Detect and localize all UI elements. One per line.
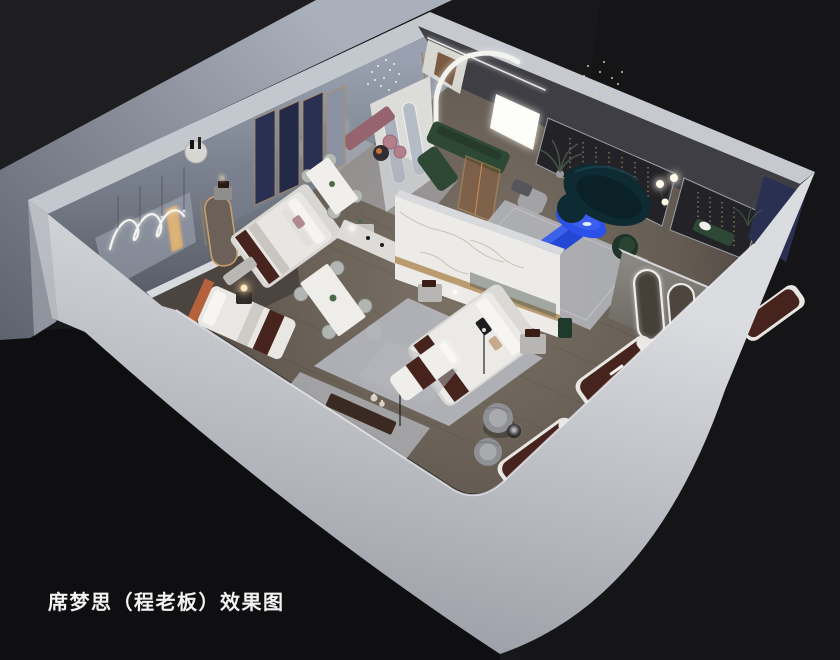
table-plant bbox=[330, 295, 337, 302]
table-decor-dish bbox=[583, 222, 592, 226]
table-lamp-glow bbox=[220, 176, 225, 181]
round-coffee-table-dark bbox=[373, 145, 389, 161]
table-plant bbox=[329, 181, 335, 187]
render-image: 席梦思（程老板）效果图 bbox=[0, 0, 840, 660]
green-cube-ottoman bbox=[558, 318, 572, 338]
console-lamp bbox=[349, 225, 356, 232]
scene-svg bbox=[0, 0, 840, 660]
dark-nightstand bbox=[236, 292, 252, 304]
caption: 席梦思（程老板）效果图 bbox=[48, 586, 285, 615]
glowing-cube-lamp bbox=[510, 426, 517, 433]
